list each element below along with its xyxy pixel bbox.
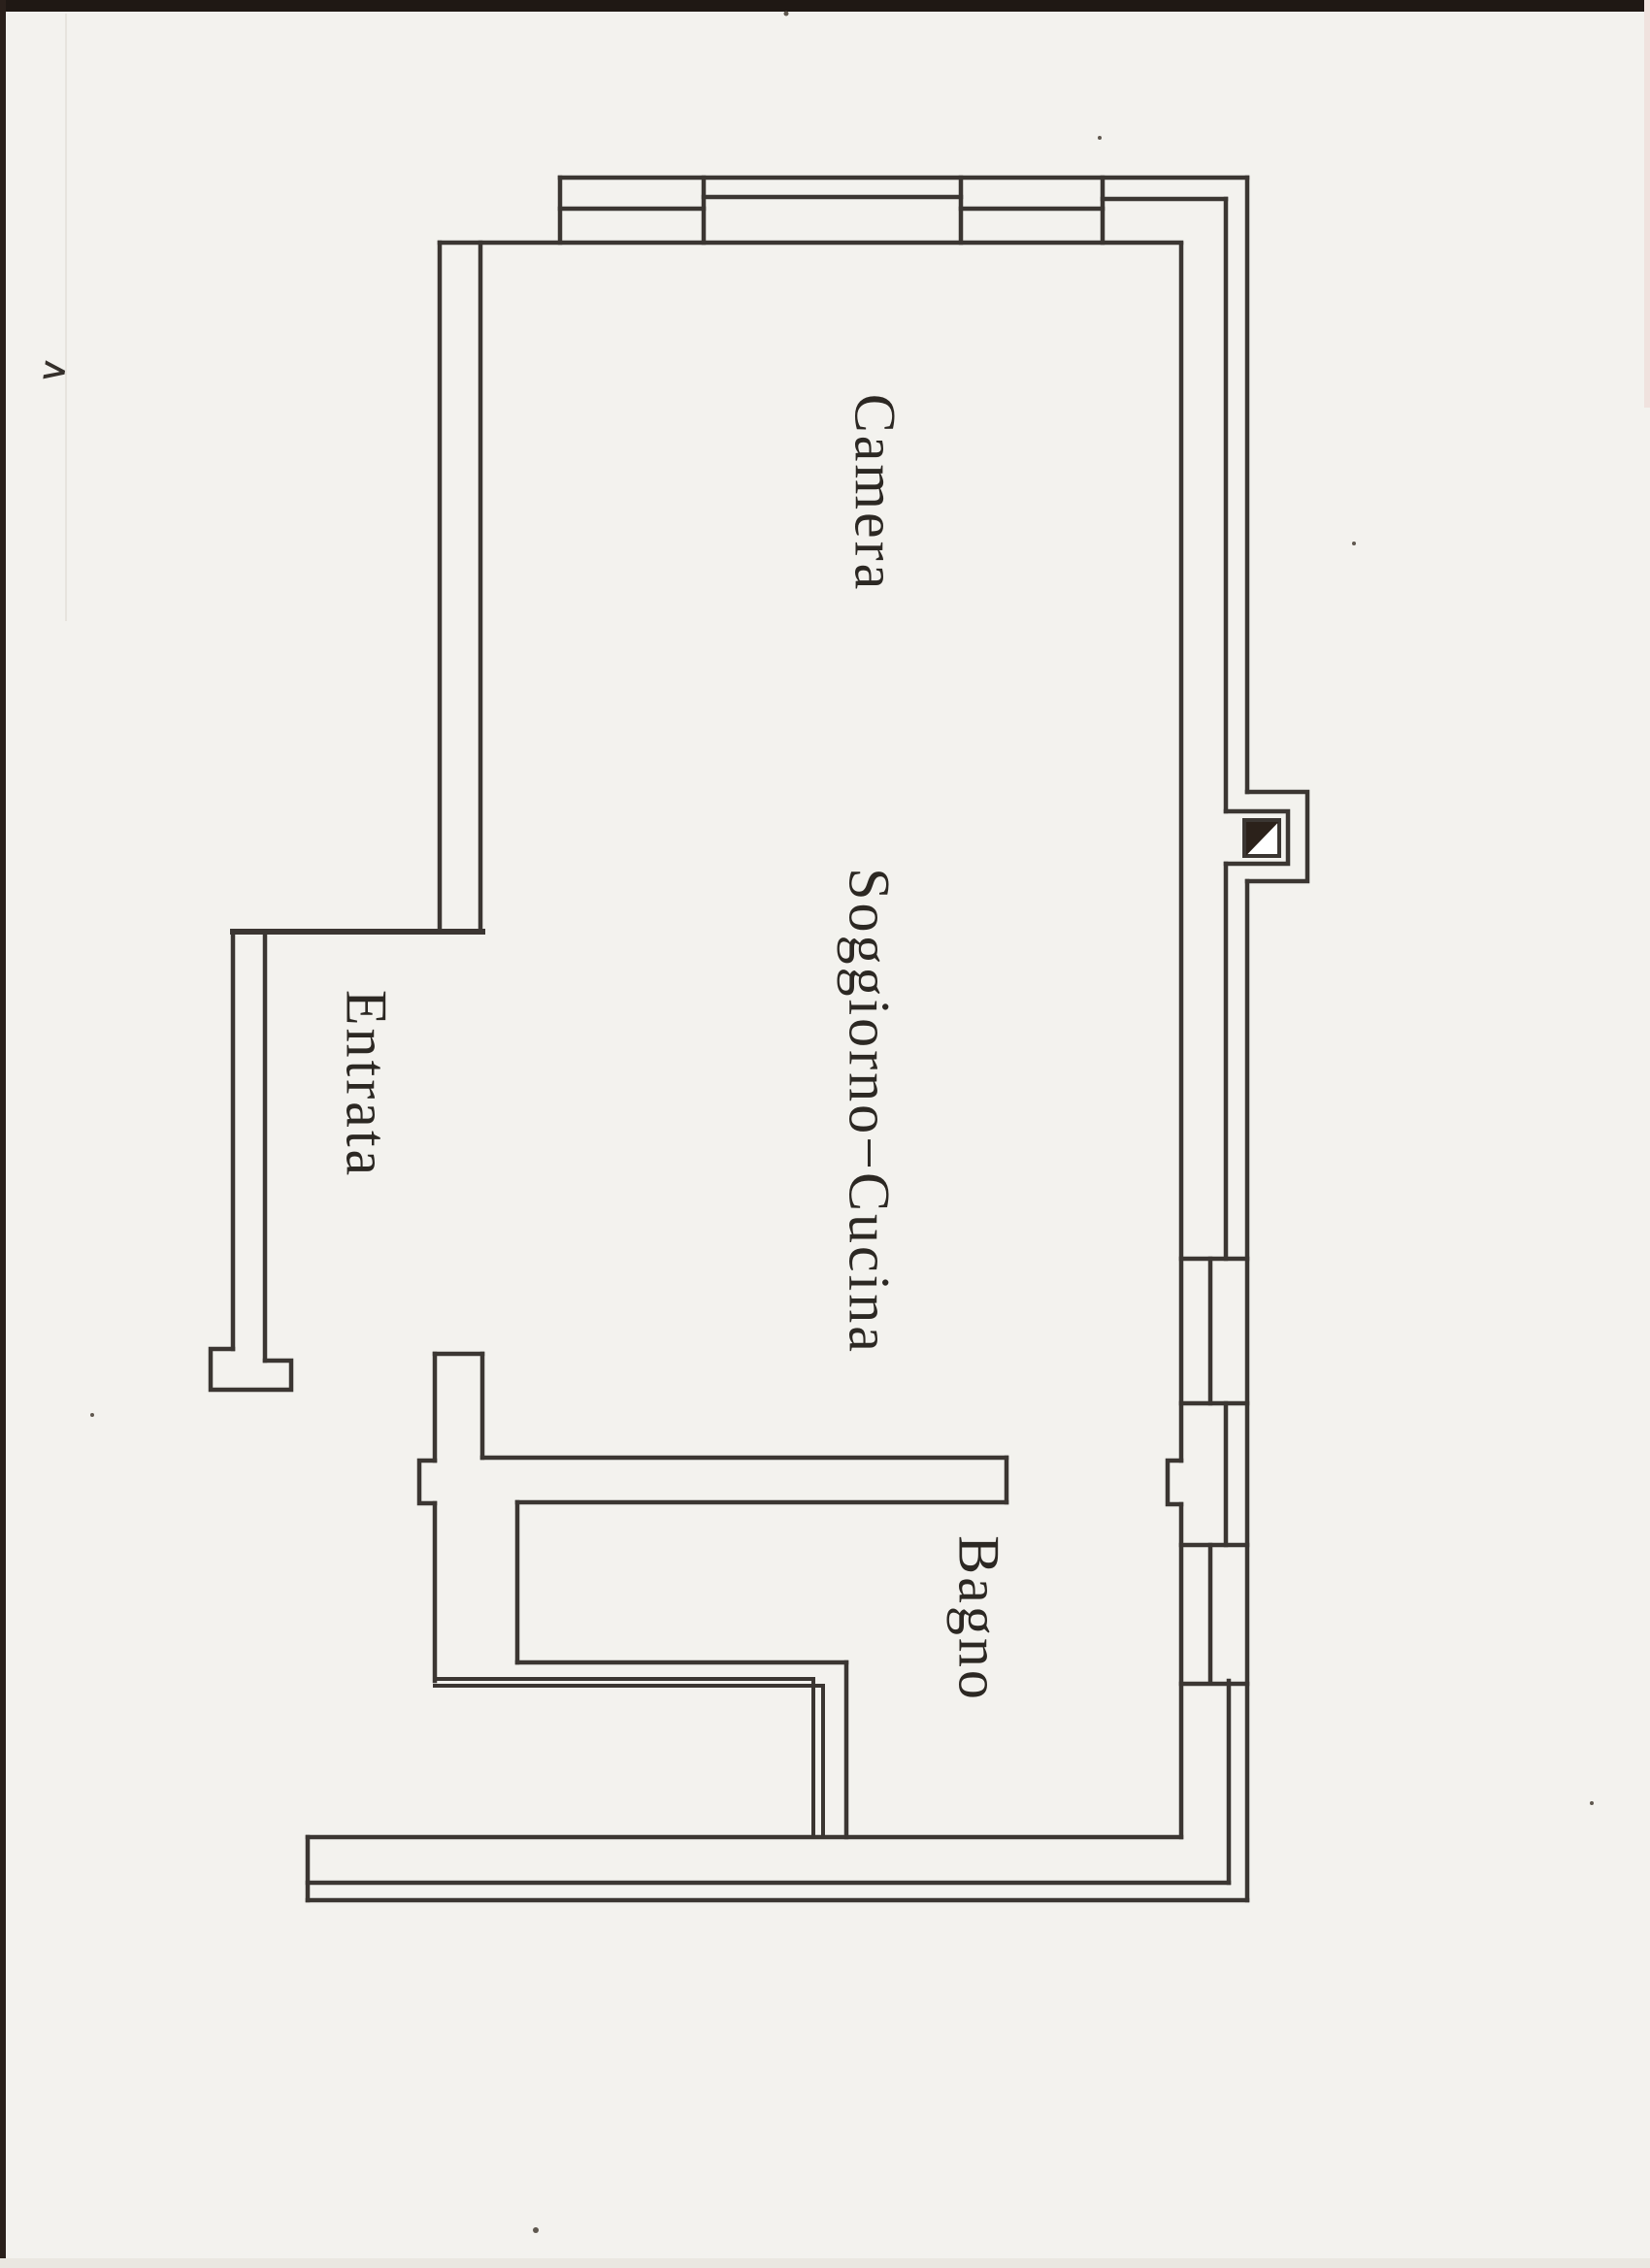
- parapet-lines: [435, 1679, 823, 1837]
- camera-left-wall: [233, 243, 482, 932]
- scan-edge-top: [0, 0, 1650, 12]
- entrata-outer-wall: [211, 932, 291, 1390]
- floor-plan-scan: Camera Soggiorno−Cucina Entrata Bagno >: [0, 0, 1650, 2268]
- bottom-wall: [308, 1837, 1247, 1900]
- scan-edge-left: [0, 0, 6, 2268]
- partition-stub-wall: [419, 1354, 482, 1681]
- room-label-soggiorno-cucina: Soggiorno−Cucina: [836, 868, 903, 1355]
- top-wall-windows: [440, 178, 1247, 243]
- scan-edge-bottom: [0, 2258, 1650, 2268]
- margin-pen-mark: >: [38, 349, 71, 392]
- scan-edge-right: [1644, 0, 1650, 408]
- room-label-entrata: Entrata: [333, 990, 400, 1178]
- column-symbol: [1244, 820, 1279, 856]
- floor-plan-drawing: [0, 0, 1650, 2268]
- room-label-camera: Camera: [841, 394, 908, 593]
- right-wall: [1168, 178, 1307, 1900]
- room-label-bagno: Bagno: [945, 1535, 1012, 1702]
- bagno-divider-wall: [482, 1458, 1006, 1837]
